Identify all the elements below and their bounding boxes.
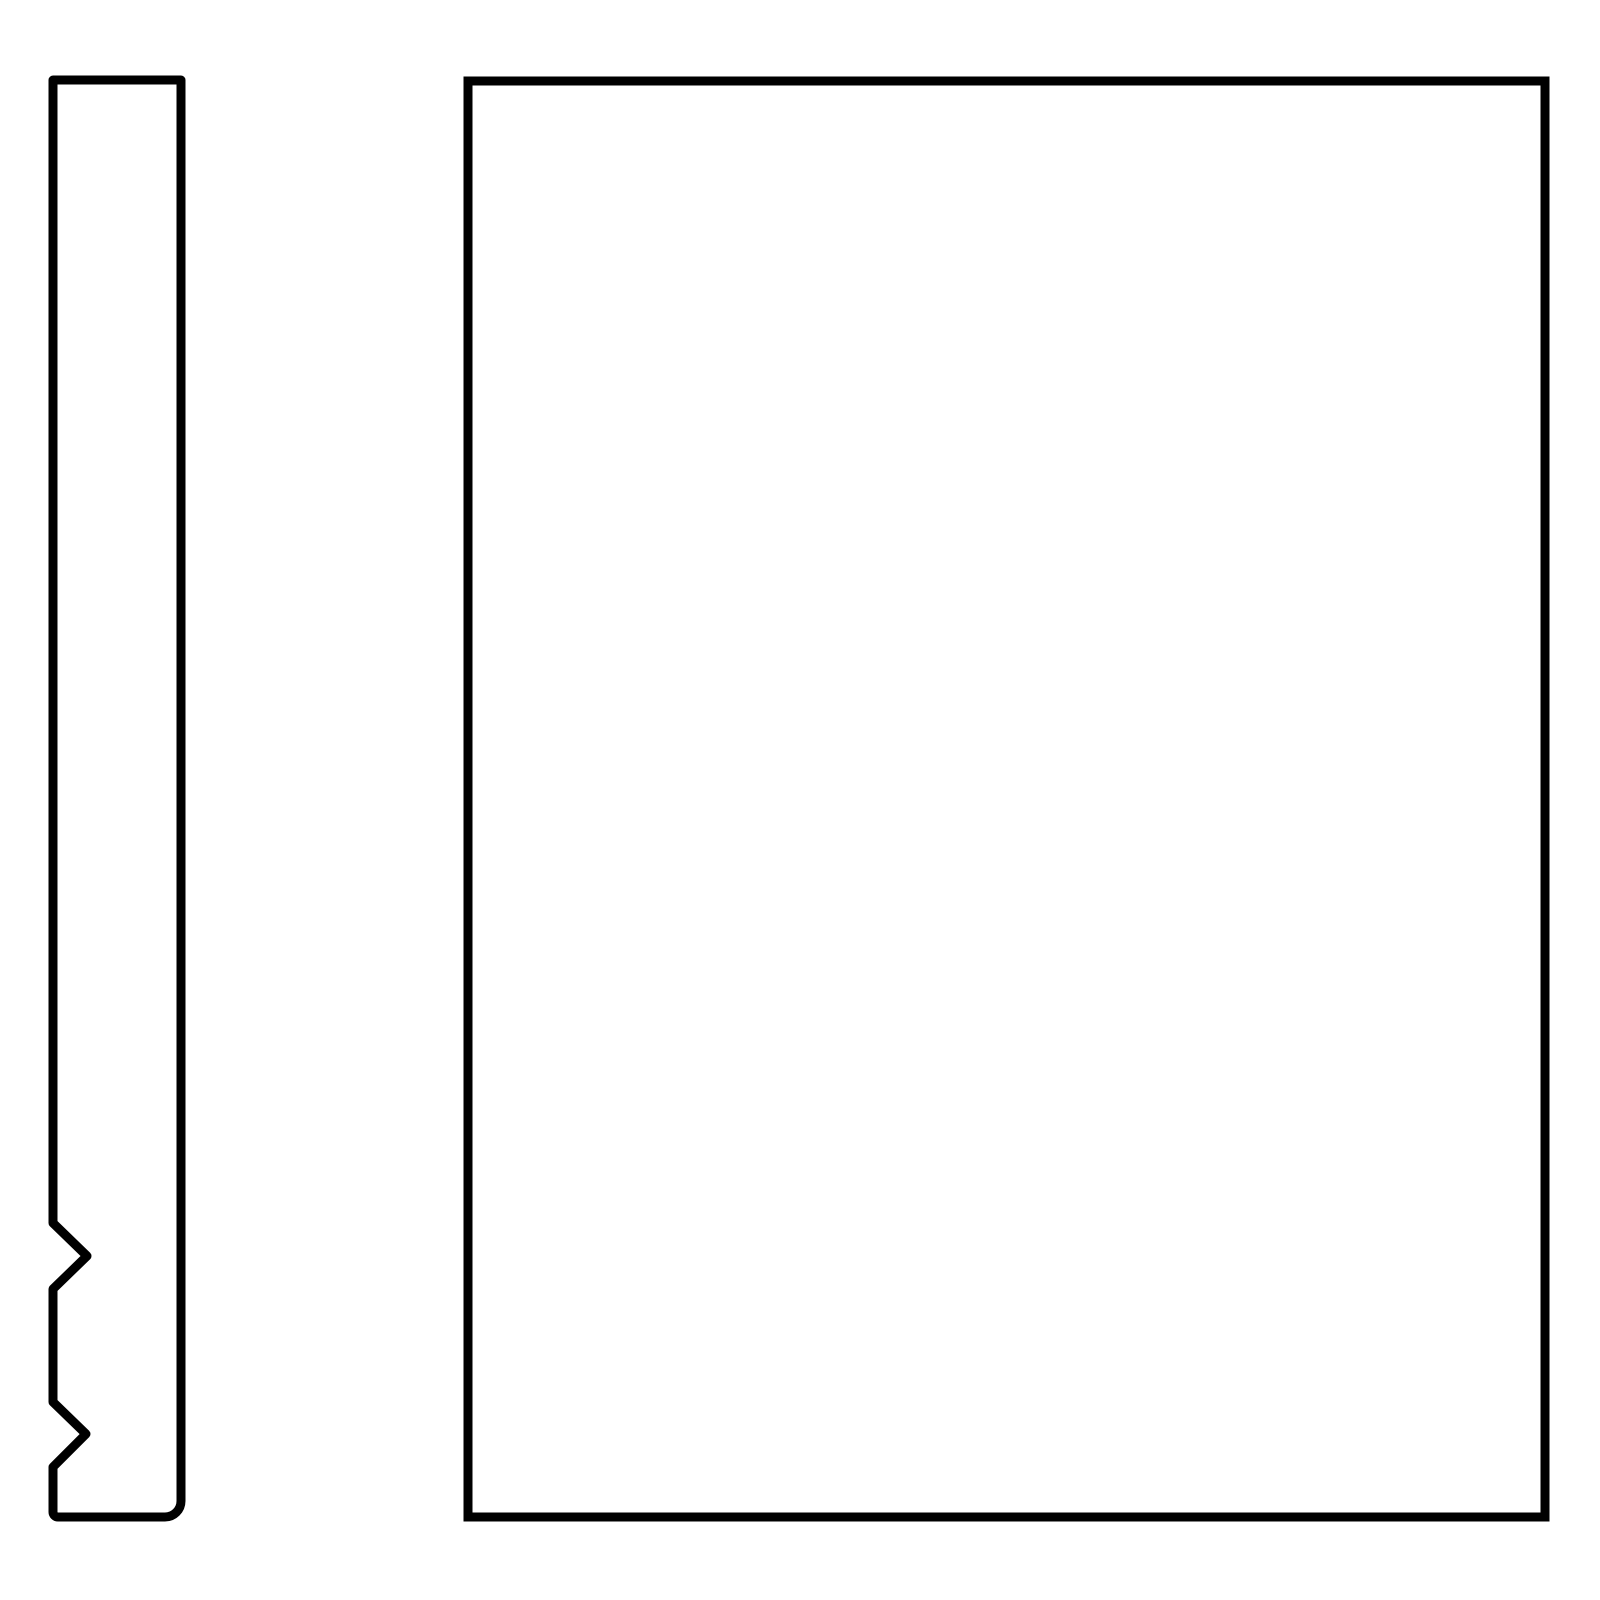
side-profile-outline (53, 80, 181, 1517)
drawing-canvas (0, 0, 1600, 1600)
front-panel-outline (468, 81, 1545, 1517)
technical-drawing (0, 0, 1600, 1600)
